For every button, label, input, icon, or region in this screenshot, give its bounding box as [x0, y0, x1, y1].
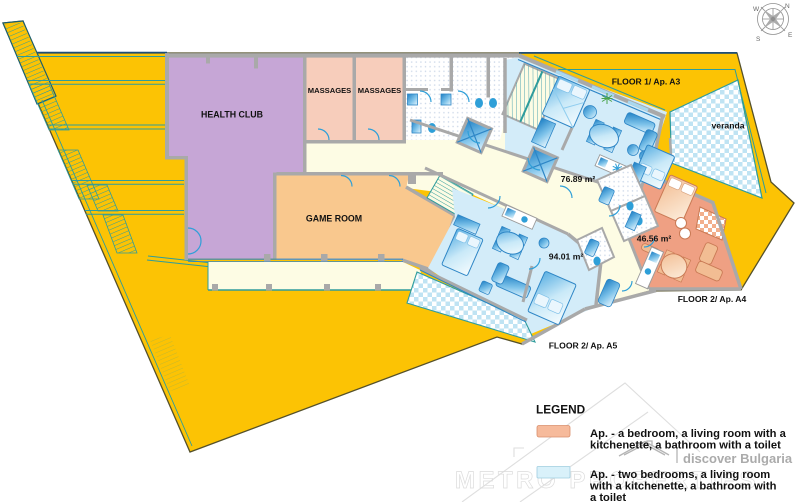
- svg-text:discover Bulgaria: discover Bulgaria: [683, 451, 793, 466]
- svg-text:MASSAGES: MASSAGES: [358, 86, 401, 95]
- svg-text:Ap. - a bedroom, a living room: Ap. - a bedroom, a living room with a: [590, 428, 787, 440]
- svg-text:kitchenette, a bathroom with a: kitchenette, a bathroom with a toilet: [590, 440, 781, 452]
- svg-text:E: E: [788, 32, 793, 39]
- svg-text:FLOOR 2/ Ap. A4: FLOOR 2/ Ap. A4: [678, 294, 747, 304]
- svg-text:S: S: [756, 36, 761, 43]
- svg-text:94.01 m²: 94.01 m²: [549, 252, 584, 262]
- svg-text:FLOOR 1/ Ap. A3: FLOOR 1/ Ap. A3: [612, 77, 681, 87]
- svg-text:HEALTH CLUB: HEALTH CLUB: [201, 110, 263, 120]
- svg-text:GAME ROOM: GAME ROOM: [306, 214, 362, 224]
- svg-text:76.89 m²: 76.89 m²: [561, 174, 596, 184]
- svg-text:FLOOR 2/ Ap. A5: FLOOR 2/ Ap. A5: [549, 341, 618, 351]
- svg-text:46.56 m²: 46.56 m²: [637, 234, 672, 244]
- svg-text:Ap. - two bedrooms, a living r: Ap. - two bedrooms, a living room: [590, 469, 770, 481]
- svg-text:W: W: [753, 6, 760, 13]
- svg-text:MASSAGES: MASSAGES: [308, 86, 351, 95]
- svg-text:a toilet: a toilet: [590, 492, 626, 502]
- svg-text:with a kitchenette, a bathroom: with a kitchenette, a bathroom with: [589, 481, 777, 493]
- svg-text:veranda: veranda: [712, 121, 745, 131]
- svg-text:N: N: [785, 3, 790, 10]
- svg-text:LEGEND: LEGEND: [536, 403, 586, 417]
